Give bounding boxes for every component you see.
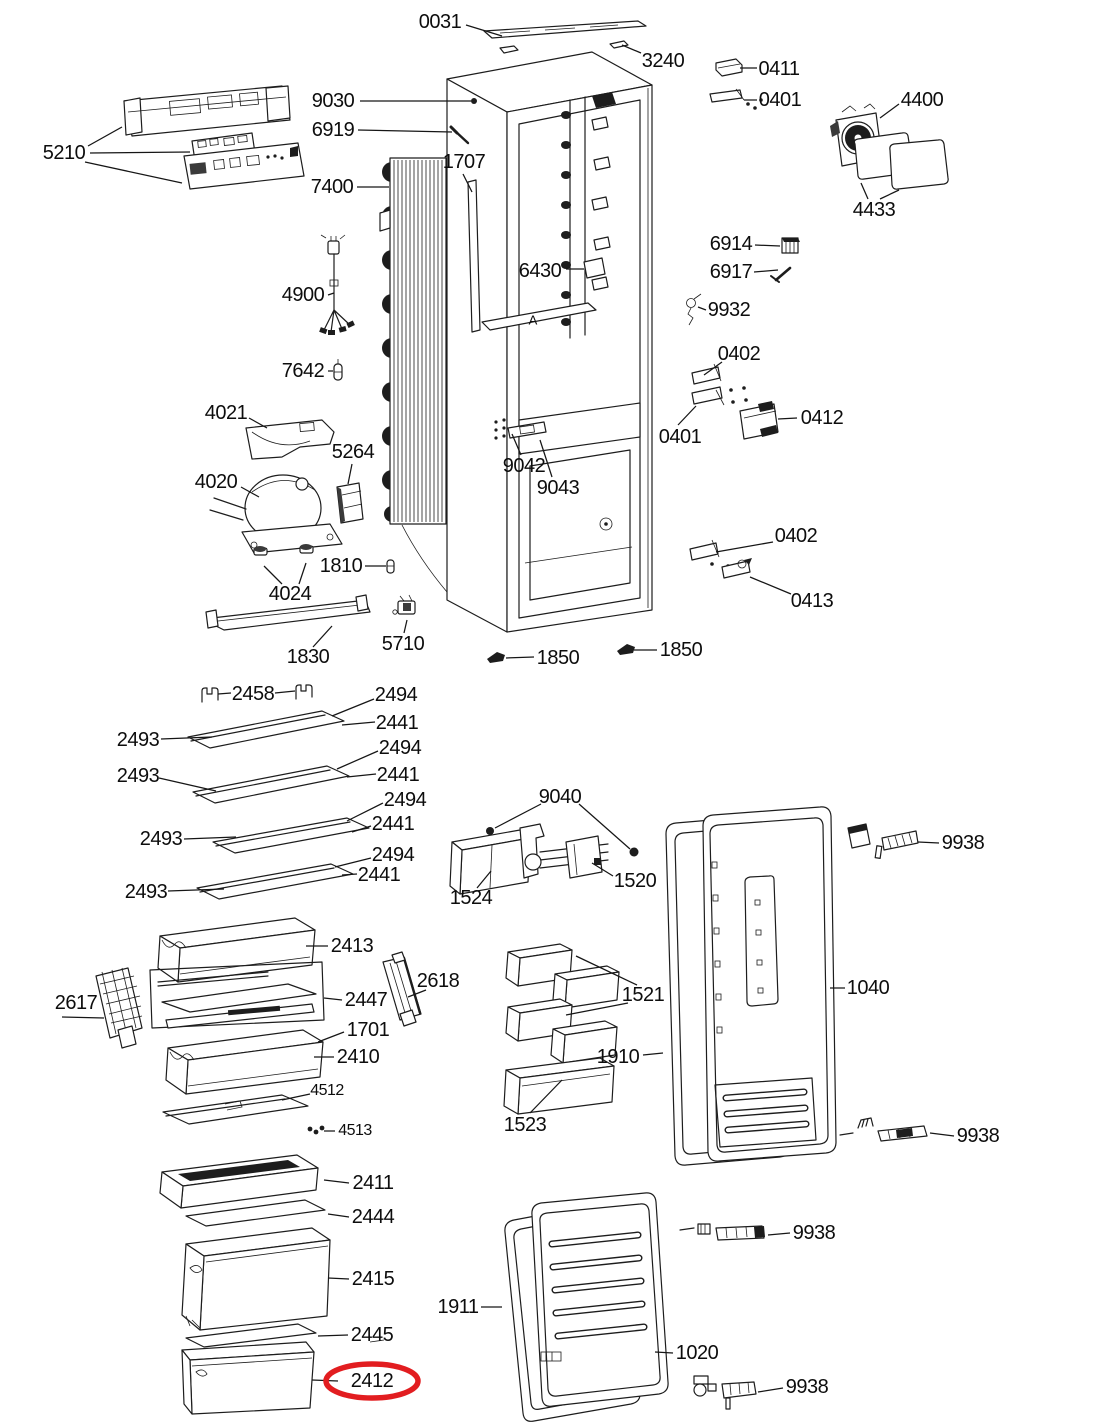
part-label-9040-46: 9040 [539, 787, 582, 807]
part-label-2445-68: 2445 [351, 1325, 394, 1345]
leader-line-1910 [643, 1053, 663, 1055]
part-label-0401-3: 0401 [759, 90, 802, 110]
leader-line-0412 [778, 418, 797, 419]
leader-line-9938 [930, 1133, 954, 1136]
leader-line-1701 [318, 1032, 344, 1042]
part-label-7400-9: 7400 [311, 177, 354, 197]
leader-line-2617 [62, 1017, 104, 1018]
part-label-2494-40: 2494 [384, 790, 427, 810]
part-label-2412-69: 2412 [351, 1371, 394, 1391]
leader-line-1520 [592, 863, 613, 876]
part-label-4400-4: 4400 [901, 90, 944, 110]
part-label-5264-21: 5264 [332, 442, 375, 462]
leader-line-4021 [249, 418, 267, 428]
part-label-9938-71: 9938 [786, 1377, 829, 1397]
part-label-1701-54: 1701 [347, 1020, 390, 1040]
leader-line-4020 [241, 487, 259, 497]
leader-line-6917 [754, 270, 778, 272]
part-label-4433-5: 4433 [853, 200, 896, 220]
leader-line-4433 [880, 190, 899, 199]
part-label-2493-45: 2493 [125, 882, 168, 902]
part-label-0401-18: 0401 [659, 427, 702, 447]
part-label-2441-35: 2441 [376, 713, 419, 733]
leader-line-0031 [466, 25, 502, 36]
leader-line-5210 [85, 162, 182, 183]
part-label-1040-58: 1040 [847, 978, 890, 998]
part-label-4512-59: 4512 [310, 1083, 344, 1099]
leader-line-9040 [495, 804, 541, 828]
part-label-2618-51: 2618 [417, 971, 460, 991]
leader-line-5710 [404, 620, 407, 633]
part-label-5210-8: 5210 [43, 143, 86, 163]
leader-line-1707 [463, 174, 472, 192]
part-label-1850-30: 1850 [660, 640, 703, 660]
part-label-9932-14: 9932 [708, 300, 751, 320]
part-label-1520-48: 1520 [614, 871, 657, 891]
leader-line-0401 [678, 406, 696, 425]
part-label-7642-16: 7642 [282, 361, 325, 381]
part-label-2441-38: 2441 [377, 765, 420, 785]
leader-line-2493 [159, 778, 216, 791]
part-label-1810-25: 1810 [320, 556, 363, 576]
part-label-6914-12: 6914 [710, 234, 753, 254]
leader-line-4024 [264, 566, 282, 584]
leader-line-2441 [342, 874, 357, 875]
leader-line-3240 [622, 45, 641, 53]
part-label-2494-37: 2494 [379, 738, 422, 758]
part-label-9030-6: 9030 [312, 91, 355, 111]
part-label-6917-13: 6917 [710, 262, 753, 282]
part-label-2441-44: 2441 [358, 865, 401, 885]
part-label-1911-66: 1911 [437, 1297, 478, 1317]
leader-line-9040 [579, 804, 630, 849]
leader-line-2494 [332, 699, 374, 716]
leader-line-1020 [655, 1352, 673, 1353]
part-label-2441-41: 2441 [372, 814, 415, 834]
part-label-4900-15: 4900 [282, 285, 325, 305]
leader-line-2441 [342, 722, 375, 725]
part-label-0031-0: 0031 [419, 12, 462, 32]
part-label-0402-31: 0402 [775, 526, 818, 546]
leader-line-2441 [352, 826, 371, 832]
leader-line-4024 [299, 563, 306, 584]
leader-line-9932 [698, 307, 706, 310]
part-label-2444-64: 2444 [352, 1207, 395, 1227]
part-label-2447-53: 2447 [345, 990, 388, 1010]
part-label-2458-33: 2458 [232, 684, 275, 704]
leader-line-6919 [358, 130, 452, 132]
part-label-1850-29: 1850 [537, 648, 580, 668]
leader-line-1830 [313, 626, 332, 647]
leader-line-1850 [506, 657, 534, 658]
part-label-4021-20: 4021 [205, 403, 248, 423]
leader-line-5264 [348, 464, 352, 484]
part-label-4024-26: 4024 [269, 584, 312, 604]
part-label-2413-50: 2413 [331, 936, 374, 956]
part-label-2494-43: 2494 [372, 845, 415, 865]
leader-line-2415 [328, 1278, 349, 1279]
part-label-1910-57: 1910 [597, 1047, 640, 1067]
part-label-9938-67: 9938 [793, 1223, 836, 1243]
leader-line-2494 [337, 751, 378, 769]
leader-line-4900 [328, 293, 334, 295]
leader-line-4512 [282, 1094, 310, 1100]
leader-line-9042 [512, 434, 521, 455]
part-label-9938-49: 9938 [942, 833, 985, 853]
leader-line-4400 [880, 104, 899, 118]
leader-line-1521 [576, 956, 637, 985]
part-label-2494-34: 2494 [375, 685, 418, 705]
annotation-A: A [529, 314, 538, 327]
part-label-0413-32: 0413 [791, 591, 834, 611]
leader-lines-layer [0, 0, 1100, 1424]
part-label-1524-47: 1524 [450, 888, 493, 908]
part-label-2410-55: 2410 [337, 1047, 380, 1067]
part-label-4020-22: 4020 [195, 472, 238, 492]
part-label-1521-56: 1521 [622, 985, 665, 1005]
leader-line-2493 [184, 837, 236, 839]
part-label-2493-42: 2493 [140, 829, 183, 849]
leader-line-0413 [750, 577, 791, 594]
leader-line-0402 [716, 542, 773, 552]
leader-line-2458 [275, 691, 295, 693]
leader-line-2445 [318, 1335, 348, 1336]
leader-line-1524 [477, 871, 491, 888]
leader-line-9938 [768, 1233, 790, 1235]
leader-line-6914 [755, 245, 780, 246]
part-label-9042-23: 9042 [503, 456, 546, 476]
leader-line-2441 [347, 774, 376, 777]
part-label-9938-62: 9938 [957, 1126, 1000, 1146]
leader-line-9938 [918, 842, 939, 843]
part-label-5710-28: 5710 [382, 634, 425, 654]
part-label-3240-1: 3240 [642, 51, 685, 71]
part-label-2493-36: 2493 [117, 730, 160, 750]
part-label-1707-10: 1707 [443, 152, 486, 172]
leader-line-2444 [328, 1214, 349, 1217]
part-label-1830-27: 1830 [287, 647, 330, 667]
leader-line-1523 [530, 1080, 562, 1113]
leader-line-2493 [168, 889, 224, 891]
part-label-6430-11: 6430 [519, 261, 562, 281]
part-label-0412-19: 0412 [801, 408, 844, 428]
leader-line-9938 [758, 1388, 783, 1392]
leader-line-5210 [88, 127, 122, 146]
leader-line-5210 [90, 152, 190, 153]
part-label-2415-65: 2415 [352, 1269, 395, 1289]
part-label-4513-60: 4513 [338, 1123, 372, 1139]
part-label-1020-70: 1020 [676, 1343, 719, 1363]
leader-line-1521 [566, 1003, 628, 1015]
part-label-1523-61: 1523 [504, 1115, 547, 1135]
leader-line-2493 [161, 737, 212, 739]
part-label-0402-17: 0402 [718, 344, 761, 364]
part-label-2493-39: 2493 [117, 766, 160, 786]
leader-line-4433 [861, 183, 868, 199]
part-label-0411-2: 0411 [758, 59, 799, 79]
leader-line-2458 [218, 693, 231, 694]
part-label-2617-52: 2617 [55, 993, 98, 1013]
exploded-parts-diagram: 0031324004110401440044339030691952107400… [0, 0, 1100, 1424]
leader-line-2411 [324, 1180, 349, 1183]
part-label-9043-24: 9043 [537, 478, 580, 498]
part-label-6919-7: 6919 [312, 120, 355, 140]
leader-line-2447 [324, 998, 342, 1000]
part-label-2411-63: 2411 [352, 1173, 393, 1193]
